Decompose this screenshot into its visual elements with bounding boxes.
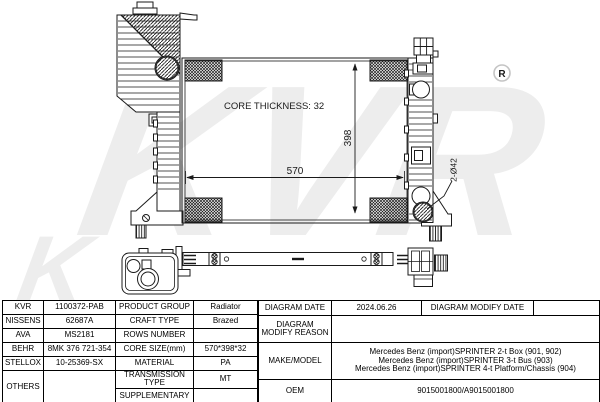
fin-block-bottom-left — [185, 198, 222, 222]
fin-block-top-left — [185, 60, 222, 81]
fin-block-top-right — [370, 60, 407, 81]
watermark-partial-text: K — [10, 217, 103, 300]
spec-label-cell: MATERIAL — [116, 357, 194, 371]
table-row: NISSENS 62687A CRAFT TYPE Brazed — [3, 315, 258, 329]
spec-value-cell: PA — [194, 357, 258, 371]
brand-cell: KVR — [3, 301, 44, 315]
spec-value-cell: MT — [194, 371, 258, 389]
diagram-modify-reason-label-cell: DIAGRAM MODIFY REASON — [259, 316, 332, 343]
code-cell: 62687A — [44, 315, 116, 329]
brand-cell: BEHR — [3, 343, 44, 357]
table-row: KVR 1100372-PAB PRODUCT GROUP Radiator — [3, 301, 258, 315]
diagram-date-value-cell: 2024.06.26 — [332, 301, 422, 316]
spec-value-cell — [194, 329, 258, 343]
table-row: AVA MS2181 ROWS NUMBER — [3, 329, 258, 343]
spec-label-cell: TRANSMISSION TYPE — [116, 371, 194, 389]
diagram-modify-date-value-cell — [534, 301, 600, 316]
diagram-modify-date-label-cell: DIAGRAM MODIFY DATE — [422, 301, 534, 316]
radiator-spec-page: KVR K R — [0, 0, 600, 402]
table-row: MAKE/MODEL Mercedes Benz (import)SPRINTE… — [259, 343, 600, 380]
code-cell: 1100372-PAB — [44, 301, 116, 315]
spec-value-cell: Radiator — [194, 301, 258, 315]
upper-port-circle — [413, 81, 430, 98]
code-cell — [44, 371, 116, 402]
brand-cell: OTHERS — [3, 371, 44, 402]
fin-block-bottom-right — [370, 198, 407, 222]
code-cell: 10-25369-SX — [44, 357, 116, 371]
port-hatched-circle — [414, 203, 432, 221]
application-table: DIAGRAM DATE 2024.06.26 DIAGRAM MODIFY D… — [258, 300, 600, 402]
height-dim-label: 398 — [343, 129, 354, 146]
spec-value-cell: Brazed — [194, 315, 258, 329]
oem-label-cell: OEM — [259, 380, 332, 402]
make-model-value-cell: Mercedes Benz (import)SPRINTER 2-t Box (… — [332, 343, 600, 380]
code-cell: MS2181 — [44, 329, 116, 343]
spec-label-cell: CRAFT TYPE — [116, 315, 194, 329]
table-row: BEHR 8MK 376 721-354 CORE SIZE(mm) 570*3… — [3, 343, 258, 357]
diagram-modify-reason-value-cell — [332, 316, 600, 343]
cross-reference-table: KVR 1100372-PAB PRODUCT GROUP Radiator N… — [2, 300, 258, 402]
spec-label-cell: SUPPLEMENTARY — [116, 388, 194, 402]
spec-value-cell: 570*398*32 — [194, 343, 258, 357]
spec-label-cell: ROWS NUMBER — [116, 329, 194, 343]
spec-value-cell — [194, 388, 258, 402]
brand-cell: NISSENS — [3, 315, 44, 329]
table-row: OEM 9015001800/A9015001800 — [259, 380, 600, 402]
top-view-tank — [122, 249, 178, 295]
outlet-pipe — [180, 13, 197, 20]
svg-text:R: R — [498, 69, 506, 80]
table-row: DIAGRAM DATE 2024.06.26 DIAGRAM MODIFY D… — [259, 301, 600, 316]
radiator-diagram: KVR K R — [0, 0, 600, 300]
right-drain-pin — [430, 226, 442, 241]
spec-label-cell: PRODUCT GROUP — [116, 301, 194, 315]
table-row: STELLOX 10-25369-SX MATERIAL PA — [3, 357, 258, 371]
code-cell: 8MK 376 721-354 — [44, 343, 116, 357]
port-dim-label: 2-Ø42 — [449, 158, 459, 182]
brand-cell: STELLOX — [3, 357, 44, 371]
diagram-date-label-cell: DIAGRAM DATE — [259, 301, 332, 316]
oem-value-cell: 9015001800/A9015001800 — [332, 380, 600, 402]
make-model-line: Mercedes Benz (import)SPRINTER 4-t Platf… — [334, 365, 597, 373]
table-row: DIAGRAM MODIFY REASON — [259, 316, 600, 343]
make-model-label-cell: MAKE/MODEL — [259, 343, 332, 380]
core-thickness-label: CORE THICKNESS: 32 — [224, 101, 324, 112]
filler-neck — [133, 2, 157, 14]
left-tank-column — [157, 112, 180, 211]
table-row: OTHERS TRANSMISSION TYPE MT — [3, 371, 258, 389]
left-drain-pin — [136, 225, 146, 238]
brand-cell: AVA — [3, 329, 44, 343]
spec-table: KVR 1100372-PAB PRODUCT GROUP Radiator N… — [2, 300, 598, 402]
spec-label-cell: CORE SIZE(mm) — [116, 343, 194, 357]
width-dim-label: 570 — [287, 166, 304, 177]
